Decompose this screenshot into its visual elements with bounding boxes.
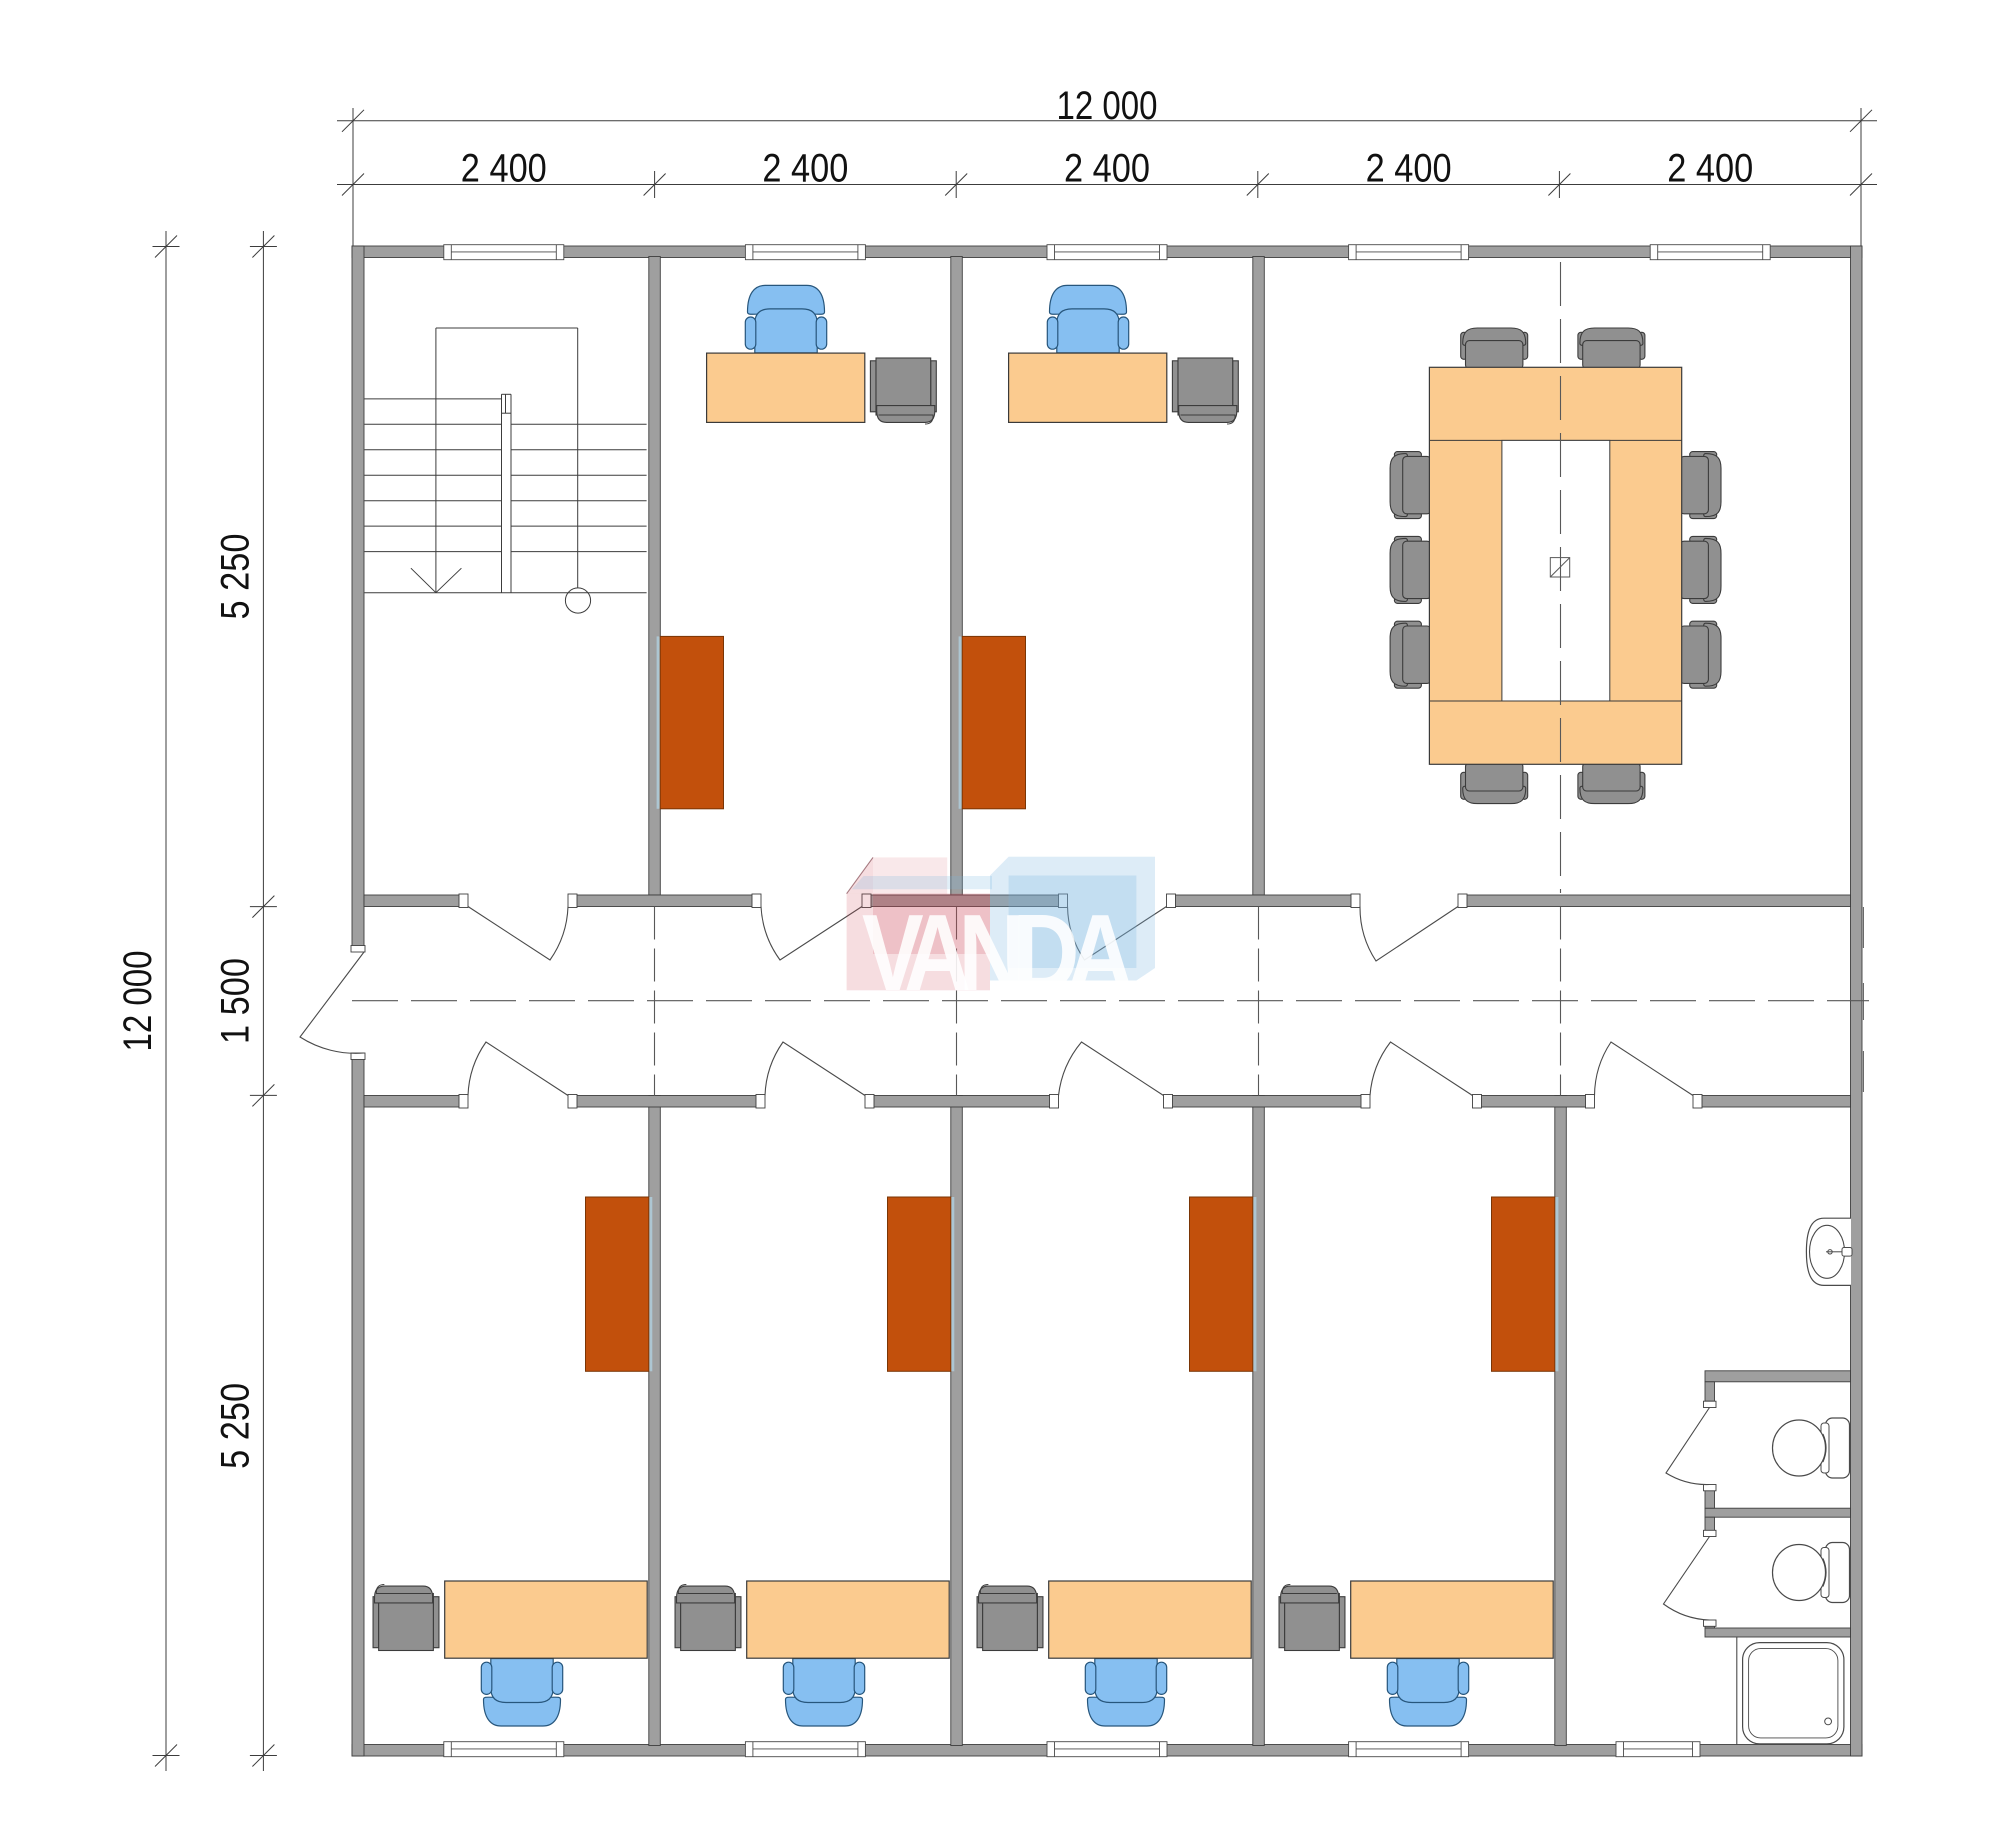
svg-text:5 250: 5 250 (214, 534, 258, 620)
svg-text:2 400: 2 400 (1366, 147, 1452, 191)
svg-text:5 250: 5 250 (214, 1383, 258, 1469)
svg-text:2 400: 2 400 (1667, 147, 1753, 191)
svg-text:2 400: 2 400 (762, 147, 848, 191)
svg-text:VANDA: VANDA (862, 892, 1132, 1014)
svg-text:2 400: 2 400 (461, 147, 547, 191)
svg-text:12 000: 12 000 (1057, 84, 1158, 128)
svg-text:1 500: 1 500 (214, 958, 258, 1044)
svg-text:12 000: 12 000 (116, 951, 160, 1052)
svg-text:2 400: 2 400 (1064, 147, 1150, 191)
